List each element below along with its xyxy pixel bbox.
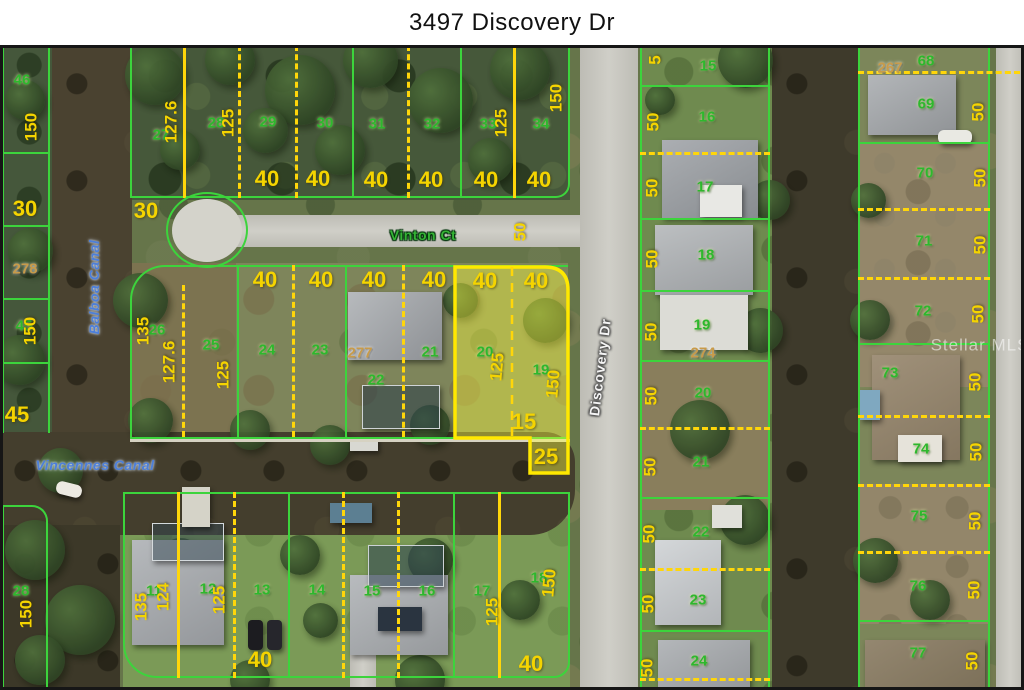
- dimension-label: 40: [527, 169, 551, 191]
- dimension-label: 50: [966, 581, 983, 600]
- labels-layer: 4615030278451504528150Balboa CanalVincen…: [0, 45, 1024, 690]
- lot-number-22: 22: [368, 373, 385, 388]
- dimension-label: 150: [23, 113, 40, 141]
- dimension-label: 40: [306, 168, 330, 190]
- dimension-label: 40: [524, 270, 548, 292]
- lot-number-16: 16: [699, 110, 716, 125]
- dimension-label: 135: [133, 593, 150, 621]
- parcel-id-277: 277: [347, 346, 372, 361]
- dimension-label: 40: [362, 269, 386, 291]
- lot-number-21: 21: [693, 455, 710, 470]
- dimension-label: 127.6: [161, 341, 178, 384]
- dimension-label: 124: [155, 583, 172, 611]
- dimension-label: 50: [642, 458, 659, 477]
- dimension-label: 50: [643, 323, 660, 342]
- dimension-label: 125: [484, 598, 501, 626]
- lot-number-71: 71: [916, 234, 933, 249]
- lot-number-14: 14: [309, 583, 326, 598]
- dimension-label: 150: [18, 600, 35, 628]
- parcel-id-278: 278: [12, 262, 37, 277]
- dimension-label: 15: [512, 411, 536, 433]
- dimension-label: 50: [970, 305, 987, 324]
- dimension-label: 125: [220, 109, 237, 137]
- dimension-label: 50: [640, 595, 657, 614]
- lot-number-29: 29: [260, 115, 277, 130]
- lot-number-31: 31: [369, 117, 386, 132]
- dimension-label: 30: [13, 198, 37, 220]
- dimension-label: 50: [639, 659, 656, 678]
- lot-number-17: 17: [697, 180, 714, 195]
- lot-number-24: 24: [691, 654, 708, 669]
- lot-number-72: 72: [915, 304, 932, 319]
- dimension-label: 125: [493, 109, 510, 137]
- parcel-id-274: 274: [690, 346, 715, 361]
- lot-number-18: 18: [698, 248, 715, 263]
- lot-number-16: 16: [419, 584, 436, 599]
- dimension-label: 50: [964, 652, 981, 671]
- lot-number-13: 13: [254, 583, 271, 598]
- page-title: 3497 Discovery Dr: [409, 9, 615, 37]
- lot-number-23: 23: [690, 593, 707, 608]
- canal-label: Balboa Canal: [87, 240, 101, 335]
- lot-number-69: 69: [918, 97, 935, 112]
- lot-number-15: 15: [700, 59, 717, 74]
- lot-number-28: 28: [13, 584, 30, 599]
- dimension-label: 50: [972, 169, 989, 188]
- dimension-label: 30: [134, 200, 158, 222]
- dimension-label: 5: [647, 55, 664, 64]
- lot-number-25: 25: [203, 338, 220, 353]
- dimension-label: 40: [422, 269, 446, 291]
- dimension-label: 25: [534, 446, 558, 468]
- title-bar: 3497 Discovery Dr: [0, 0, 1024, 45]
- lot-number-20: 20: [695, 386, 712, 401]
- dimension-label: 125: [487, 352, 506, 382]
- lot-number-19: 19: [694, 318, 711, 333]
- canal-label: Vincennes Canal: [35, 458, 154, 472]
- dimension-label: 50: [512, 223, 529, 242]
- lot-number-34: 34: [533, 117, 550, 132]
- dimension-label: 125: [215, 361, 232, 389]
- dimension-label: 40: [253, 269, 277, 291]
- dimension-label: 50: [970, 103, 987, 122]
- street-label: Vinton Ct: [390, 228, 456, 242]
- dimension-label: 40: [519, 653, 543, 675]
- lot-number-30: 30: [317, 116, 334, 131]
- dimension-label: 50: [972, 236, 989, 255]
- dimension-label: 125: [211, 586, 228, 614]
- lot-number-75: 75: [911, 509, 928, 524]
- parcel-id-267: 267: [877, 61, 902, 76]
- dimension-label: 50: [967, 373, 984, 392]
- lot-number-68: 68: [918, 54, 935, 69]
- dimension-label: 45: [5, 404, 29, 426]
- lot-number-23: 23: [312, 343, 329, 358]
- lot-number-46: 46: [14, 73, 31, 88]
- dimension-label: 127.6: [163, 101, 180, 144]
- dimension-label: 50: [643, 387, 660, 406]
- aerial-map: 4615030278451504528150Balboa CanalVincen…: [0, 45, 1024, 690]
- dimension-label: 40: [364, 169, 388, 191]
- lot-number-15: 15: [364, 584, 381, 599]
- dimension-label: 40: [255, 168, 279, 190]
- dimension-label: 40: [473, 270, 497, 292]
- lot-number-22: 22: [693, 525, 710, 540]
- lot-number-24: 24: [259, 343, 276, 358]
- dimension-label: 135: [135, 317, 152, 345]
- listing-map-image: 3497 Discovery Dr: [0, 0, 1024, 690]
- lot-number-70: 70: [917, 166, 934, 181]
- street-label: Discovery Dr: [587, 317, 613, 416]
- lot-number-76: 76: [910, 579, 927, 594]
- lot-number-32: 32: [424, 117, 441, 132]
- dimension-label: 50: [967, 512, 984, 531]
- dimension-label: 150: [543, 369, 562, 399]
- lot-number-77: 77: [910, 646, 927, 661]
- dimension-label: 50: [645, 113, 662, 132]
- dimension-label: 150: [548, 84, 565, 112]
- watermark: Stellar MLS: [931, 337, 1024, 354]
- lot-number-21: 21: [422, 345, 439, 360]
- dimension-label: 150: [539, 568, 558, 598]
- dimension-label: 40: [309, 269, 333, 291]
- lot-number-74: 74: [913, 442, 930, 457]
- lot-number-17: 17: [474, 584, 491, 599]
- dimension-label: 50: [644, 250, 661, 269]
- dimension-label: 40: [474, 169, 498, 191]
- dimension-label: 150: [22, 317, 39, 345]
- dimension-label: 50: [641, 525, 658, 544]
- dimension-label: 40: [419, 169, 443, 191]
- dimension-label: 40: [248, 649, 272, 671]
- dimension-label: 50: [644, 179, 661, 198]
- lot-number-73: 73: [882, 366, 899, 381]
- dimension-label: 50: [968, 443, 985, 462]
